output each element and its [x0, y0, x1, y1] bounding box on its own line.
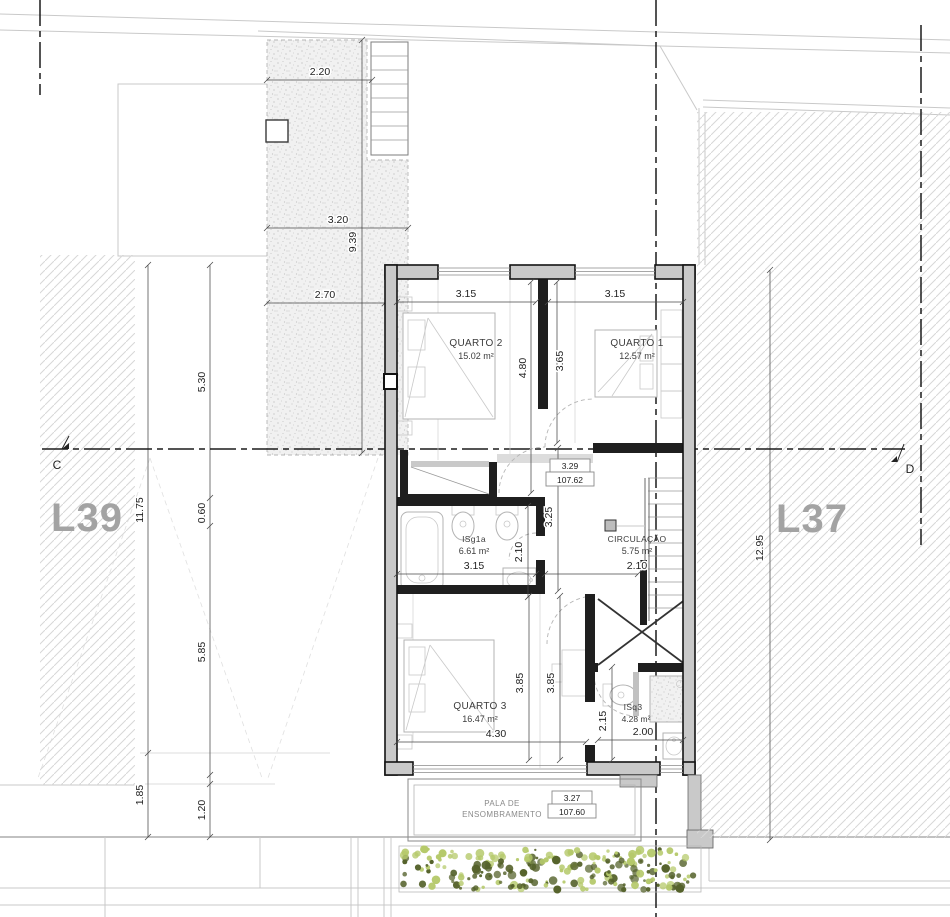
level-lower-absolute: 107.60 [559, 807, 585, 817]
shading-canopy: PALA DE ENSOMBRAMENTO 3.27 107.60 [408, 779, 641, 841]
dim-quarto3-hb: 3.85 [545, 673, 557, 694]
dim-quarto1-w: 3.15 [605, 288, 626, 300]
dim-left-c: 11.75 [134, 497, 146, 523]
canopy-label-2: ENSOMBRAMENTO [462, 810, 542, 819]
dim-left-f: 1.20 [196, 800, 208, 821]
dim-isg1a-h: 2.10 [513, 542, 525, 563]
desk-quarto3 [552, 650, 586, 696]
level-lower-relative: 3.27 [564, 793, 581, 803]
area-isg1a: 6.61 m² [459, 546, 490, 556]
dim-quarto1-h: 3.65 [554, 351, 566, 372]
dim-right-depth: 12.95 [754, 535, 766, 561]
wardrobe-quarto1 [661, 310, 682, 418]
dim-court-mid: 3.20 [328, 214, 349, 226]
lot-l39-label: L39 [51, 496, 123, 540]
dim-court-depth: 9.39 [347, 232, 359, 253]
canopy-label-1: PALA DE [484, 799, 520, 808]
label-quarto2: QUARTO 2 [449, 338, 502, 349]
dim-isg1a-w: 3.15 [464, 560, 485, 572]
closet-rod [411, 461, 489, 467]
area-quarto3: 16.47 m² [462, 714, 498, 724]
dim-circulacao-w: 2.10 [627, 560, 648, 572]
courtyard-box [266, 120, 288, 142]
building: QUARTO 2 15.02 m² QUARTO 1 12.57 m² ISg1… [384, 265, 701, 841]
floor-plan-svg: L39 L37 12.95 2.20 3.20 2.70 9.39 [0, 0, 950, 917]
section-marker-c: C [53, 458, 62, 472]
dim-court-top: 2.20 [310, 66, 331, 78]
bed-quarto2 [397, 297, 495, 435]
label-isq3: ISq3 [624, 702, 643, 712]
area-quarto2: 15.02 m² [458, 351, 494, 361]
duct-column [605, 520, 616, 531]
exterior-stair [371, 42, 408, 155]
level-marker-lower: 3.27 107.60 [548, 791, 596, 818]
shower [650, 676, 687, 722]
label-quarto3: QUARTO 3 [453, 701, 506, 712]
dim-left-e: 1.85 [134, 785, 146, 806]
dim-quarto2-w: 3.15 [456, 288, 477, 300]
dim-quarto2-h: 4.80 [517, 358, 529, 379]
hedge-dots [400, 845, 696, 893]
lot-l37: L37 12.95 [697, 112, 950, 843]
dim-left-d: 5.85 [196, 642, 208, 663]
lot-l37-label: L37 [776, 497, 848, 541]
area-isq3: 4.28 m² [622, 714, 651, 724]
dim-isq3-w: 2.00 [633, 726, 654, 738]
bed-quarto1 [595, 310, 682, 418]
dim-court-bottom: 2.70 [315, 289, 336, 301]
dim-quarto3-ha: 3.85 [514, 673, 526, 694]
washbasin-isq3 [663, 733, 685, 759]
dim-circulacao-h: 3.25 [543, 507, 555, 528]
bed-quarto3 [397, 624, 494, 749]
label-quarto1: QUARTO 1 [610, 338, 663, 349]
level-upper-relative: 3.29 [562, 461, 579, 471]
dim-isq3-h: 2.15 [597, 711, 609, 732]
dim-left-b: 0.60 [196, 503, 208, 524]
area-quarto1: 12.57 m² [619, 351, 655, 361]
level-marker-upper: 3.29 107.62 [546, 459, 594, 486]
bidet [496, 505, 518, 540]
label-circulacao: CIRCULAÇÃO [608, 534, 667, 544]
left-wall-window-marker [384, 374, 397, 389]
level-upper-absolute: 107.62 [557, 475, 583, 485]
area-circulacao: 5.75 m² [622, 546, 653, 556]
floor-plan-drawing: L39 L37 12.95 2.20 3.20 2.70 9.39 [0, 0, 950, 917]
dim-quarto3-w: 4.30 [486, 728, 507, 740]
label-isg1a: ISg1a [462, 534, 486, 544]
lot-l39: L39 [40, 255, 135, 785]
dim-left-a: 5.30 [196, 372, 208, 393]
section-marker-d: D [906, 462, 915, 476]
